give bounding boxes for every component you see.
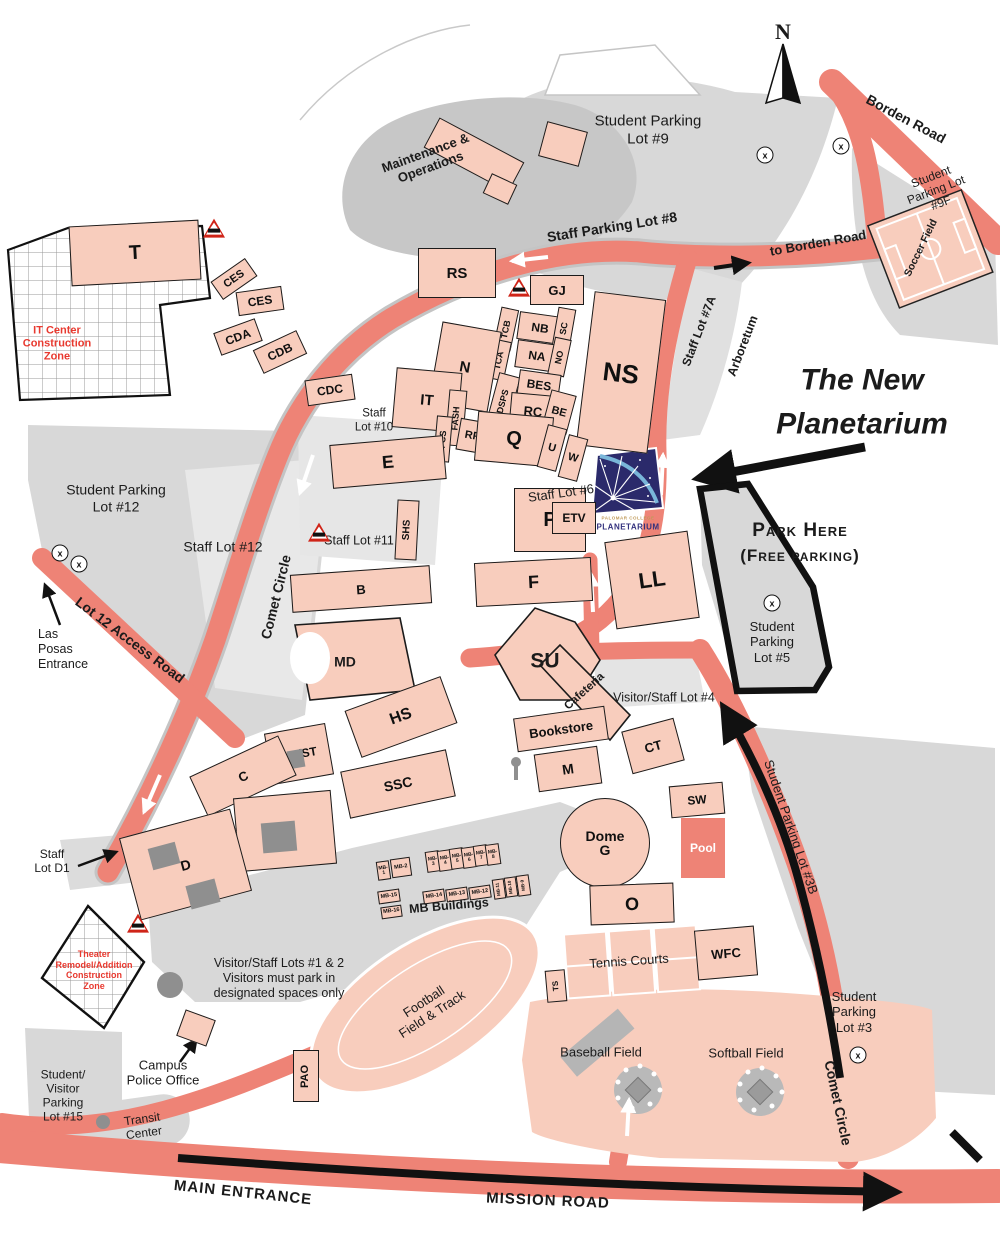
label-staff-d1: Staff Lot D1 (34, 847, 69, 875)
label-staff12: Staff Lot #12 (183, 539, 262, 556)
building-MB9-label: MB-9 (521, 880, 527, 892)
building-MB9: MB-9 (516, 874, 532, 897)
label-police: Campus Police Office (127, 1058, 200, 1089)
building-MB11-label: MB-11 (496, 882, 502, 896)
label-park-here-2: (Free parking) (740, 546, 860, 566)
construction-icon-gj (508, 278, 530, 297)
building-F: F (474, 557, 593, 607)
x-marker-lot12-a: x (52, 545, 69, 562)
construction-icon-staff11 (308, 523, 330, 542)
label-softball: Softball Field (708, 1045, 783, 1060)
building-MB10-label: MB-10 (508, 880, 514, 894)
label-theater-zone: Theater Remodel/Addition Construction Zo… (56, 949, 133, 991)
building-SC-label: SC (558, 321, 569, 335)
building-O: O (589, 883, 674, 926)
label-staff11: Staff Lot #11 (324, 534, 394, 549)
las-posas-arrow (45, 585, 60, 625)
building-SHS: SHS (394, 499, 419, 560)
building-MD-notch (290, 632, 330, 684)
bookstore-label: Bookstore (528, 718, 593, 740)
building-NO-label: NO (554, 349, 566, 364)
label-lot12: Student Parking Lot #12 (66, 481, 166, 514)
label-su: SU (530, 650, 559, 675)
building-TS-label: TS (552, 981, 561, 992)
building-PAO: PAO (293, 1050, 319, 1102)
label-md: MD (334, 654, 356, 671)
building-T: T (69, 220, 202, 287)
building-MB8: MB-8 (485, 843, 502, 866)
label-lot3: Student Parking Lot #3 (832, 989, 877, 1035)
campus-map: T CES CES CDA CDB CDC RS GJ NS TCB NB SC… (0, 0, 1000, 1250)
label-lot5: Student Parking Lot #5 (750, 619, 795, 665)
building-SHS-label: SHS (401, 519, 412, 540)
construction-icon-t (203, 219, 225, 238)
building-pool: Pool (681, 818, 725, 878)
label-it-zone: IT Center Construction Zone (23, 325, 91, 364)
x-marker-lot9-a: x (757, 147, 774, 164)
building-RS: RS (418, 248, 496, 298)
boundary-line (545, 45, 700, 95)
label-lot9: Student Parking Lot #9 (595, 112, 702, 147)
building-MB1: MB-1 (376, 860, 392, 881)
building-LL: LL (604, 531, 699, 630)
compass-n-label: N (775, 19, 791, 45)
building-WFC: WFC (694, 925, 758, 980)
building-MB2: MB-2 (390, 857, 412, 879)
building-dome-g: Dome G (560, 798, 650, 888)
building-DSPS-label: DSPS (495, 388, 510, 414)
building-TS: TS (545, 969, 568, 1003)
label-new-planetarium-1: The New (800, 362, 923, 397)
label-lots-1-2-note: Visitor/Staff Lots #1 & 2 Visitors must … (214, 956, 345, 1000)
label-lot4: Visitor/Staff Lot #4 (613, 691, 715, 706)
park-here-arrow (700, 447, 865, 478)
route-junction-dash (952, 1132, 980, 1160)
logo-name-label: PLANETARIUM (596, 522, 659, 531)
building-TCB-label: TCB (500, 319, 513, 339)
label-staff10: Staff Lot #10 (355, 407, 393, 434)
label-baseball: Baseball Field (560, 1044, 642, 1059)
label-park-here-1: Park Here (752, 520, 848, 542)
building-ETV: ETV (552, 502, 596, 534)
compass-arrow (766, 44, 800, 103)
label-las-posas: Las Posas Entrance (38, 627, 88, 671)
label-transit: Transit Center (123, 1109, 163, 1142)
x-marker-lot3: x (850, 1047, 867, 1064)
x-marker-lot12-b: x (71, 556, 88, 573)
building-GJ: GJ (530, 275, 584, 305)
planetarium-logo (592, 448, 663, 514)
label-new-planetarium-2: Planetarium (776, 406, 948, 441)
x-marker-lot9-b: x (833, 138, 850, 155)
building-SW: SW (669, 782, 726, 819)
logo-college-label: PALOMAR COLLEGE (602, 515, 655, 520)
x-marker-lot5: x (764, 595, 781, 612)
building-PAO-label: PAO (301, 1064, 312, 1087)
building-A-roof (261, 821, 297, 854)
construction-icon-theater (127, 914, 149, 933)
label-lot15: Student/ Visitor Parking Lot #15 (41, 1068, 86, 1125)
